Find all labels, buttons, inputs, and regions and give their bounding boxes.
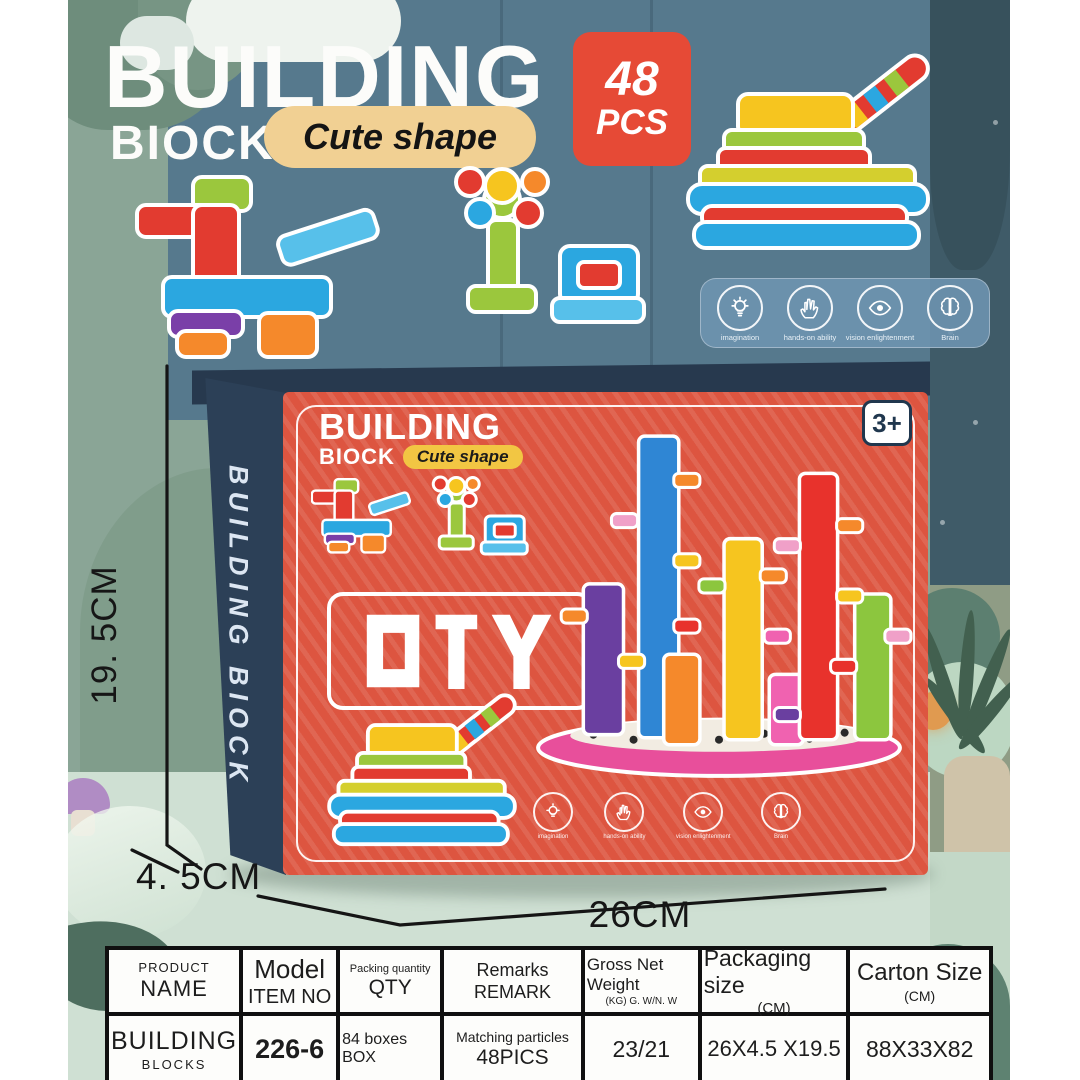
feature-label: Brain xyxy=(941,333,959,342)
header-cell-weight: Gross Net Weight (KG) G. W/N. W xyxy=(585,950,702,1016)
brain-icon xyxy=(927,285,973,331)
snow-dot xyxy=(993,120,998,125)
snow-dot xyxy=(940,520,945,525)
feature-label: vision enlightenment xyxy=(676,834,731,840)
lightbulb-icon xyxy=(533,792,573,832)
feature-label: vision enlightenment xyxy=(846,333,914,342)
feature-vision: vision enlightenment xyxy=(845,285,915,342)
header-cell-packaging-size: Packaging size (CM) xyxy=(702,950,851,1016)
data-cell-model: 226-6 xyxy=(243,1016,340,1080)
scene-background: BUILDING BIOCK Cute shape 48 PCS xyxy=(68,0,1010,1080)
product-poster: BUILDING BIOCK Cute shape 48 PCS xyxy=(0,0,1080,1080)
giraffe-toy-image xyxy=(135,175,425,360)
snow-dot xyxy=(973,420,978,425)
box-front: BUILDING BIOCK Cute shape 3+ xyxy=(283,392,928,875)
box-tank-image xyxy=(323,684,528,852)
piece-count-badge: 48 PCS xyxy=(573,32,691,166)
feature-label: hands-on ability xyxy=(784,333,837,342)
box-windmill-image xyxy=(425,472,533,567)
box-feature-icons: imagination hands-on ability xyxy=(533,792,801,840)
spec-table: PRODUCT NAME Model ITEM NO Packing quant… xyxy=(105,946,993,1080)
box-giraffe-image xyxy=(311,478,429,554)
brain-icon xyxy=(761,792,801,832)
piece-count-unit: PCS xyxy=(596,104,668,143)
feature-hands-on: hands-on ability xyxy=(775,285,845,342)
tank-toy-image xyxy=(680,42,945,257)
box-side-text: BUILDING BIOCK xyxy=(223,465,254,788)
data-cell-weight: 23/21 xyxy=(585,1016,702,1080)
dimension-width-label: 26CM xyxy=(540,894,740,936)
features-banner: imagination hands-on ability vision e xyxy=(700,278,990,348)
box-towers-image xyxy=(523,418,915,780)
hand-icon xyxy=(604,792,644,832)
page-title-line2: BIOCK xyxy=(110,116,275,171)
eye-icon xyxy=(857,285,903,331)
header-cell-carton-size: Carton Size (CM) xyxy=(850,950,989,1016)
feature-label: hands-on ability xyxy=(603,834,645,840)
box-subtitle-pill: Cute shape xyxy=(403,445,523,469)
feature-label: imagination xyxy=(721,333,759,342)
box-title: BUILDING xyxy=(319,406,501,448)
header-cell-product-name: PRODUCT NAME xyxy=(109,950,243,1016)
feature-imagination: imagination xyxy=(705,285,775,342)
feature-imagination: imagination xyxy=(533,792,573,840)
eye-icon xyxy=(683,792,723,832)
lightbulb-icon xyxy=(717,285,763,331)
header-cell-qty: Packing quantity QTY xyxy=(340,950,444,1016)
windmill-toy-image xyxy=(440,158,655,348)
dimension-height-label: 19. 5CM xyxy=(85,518,129,752)
hand-icon xyxy=(787,285,833,331)
data-cell-carton-size: 88X33X82 xyxy=(850,1016,989,1080)
chair xyxy=(944,756,1010,858)
feature-brain: Brain xyxy=(761,792,801,840)
data-cell-packaging-size: 26X4.5 X19.5 xyxy=(702,1016,851,1080)
data-cell-product-name: BUILDING BLOCKS xyxy=(109,1016,243,1080)
feature-hands-on: hands-on ability xyxy=(603,792,645,840)
feature-label: Brain xyxy=(774,834,788,840)
data-cell-qty: 84 boxes BOX xyxy=(340,1016,444,1080)
feature-brain: Brain xyxy=(915,285,985,342)
dimension-depth-label: 4. 5CM xyxy=(136,856,261,898)
header-cell-remarks: Remarks REMARK xyxy=(444,950,585,1016)
box-title-line2: BIOCK xyxy=(319,444,395,470)
feature-vision: vision enlightenment xyxy=(676,792,731,840)
data-cell-remarks: Matching particles 48PICS xyxy=(444,1016,585,1080)
header-cell-model: Model ITEM NO xyxy=(243,950,340,1016)
feature-label: imagination xyxy=(538,834,569,840)
piece-count-number: 48 xyxy=(605,56,658,104)
